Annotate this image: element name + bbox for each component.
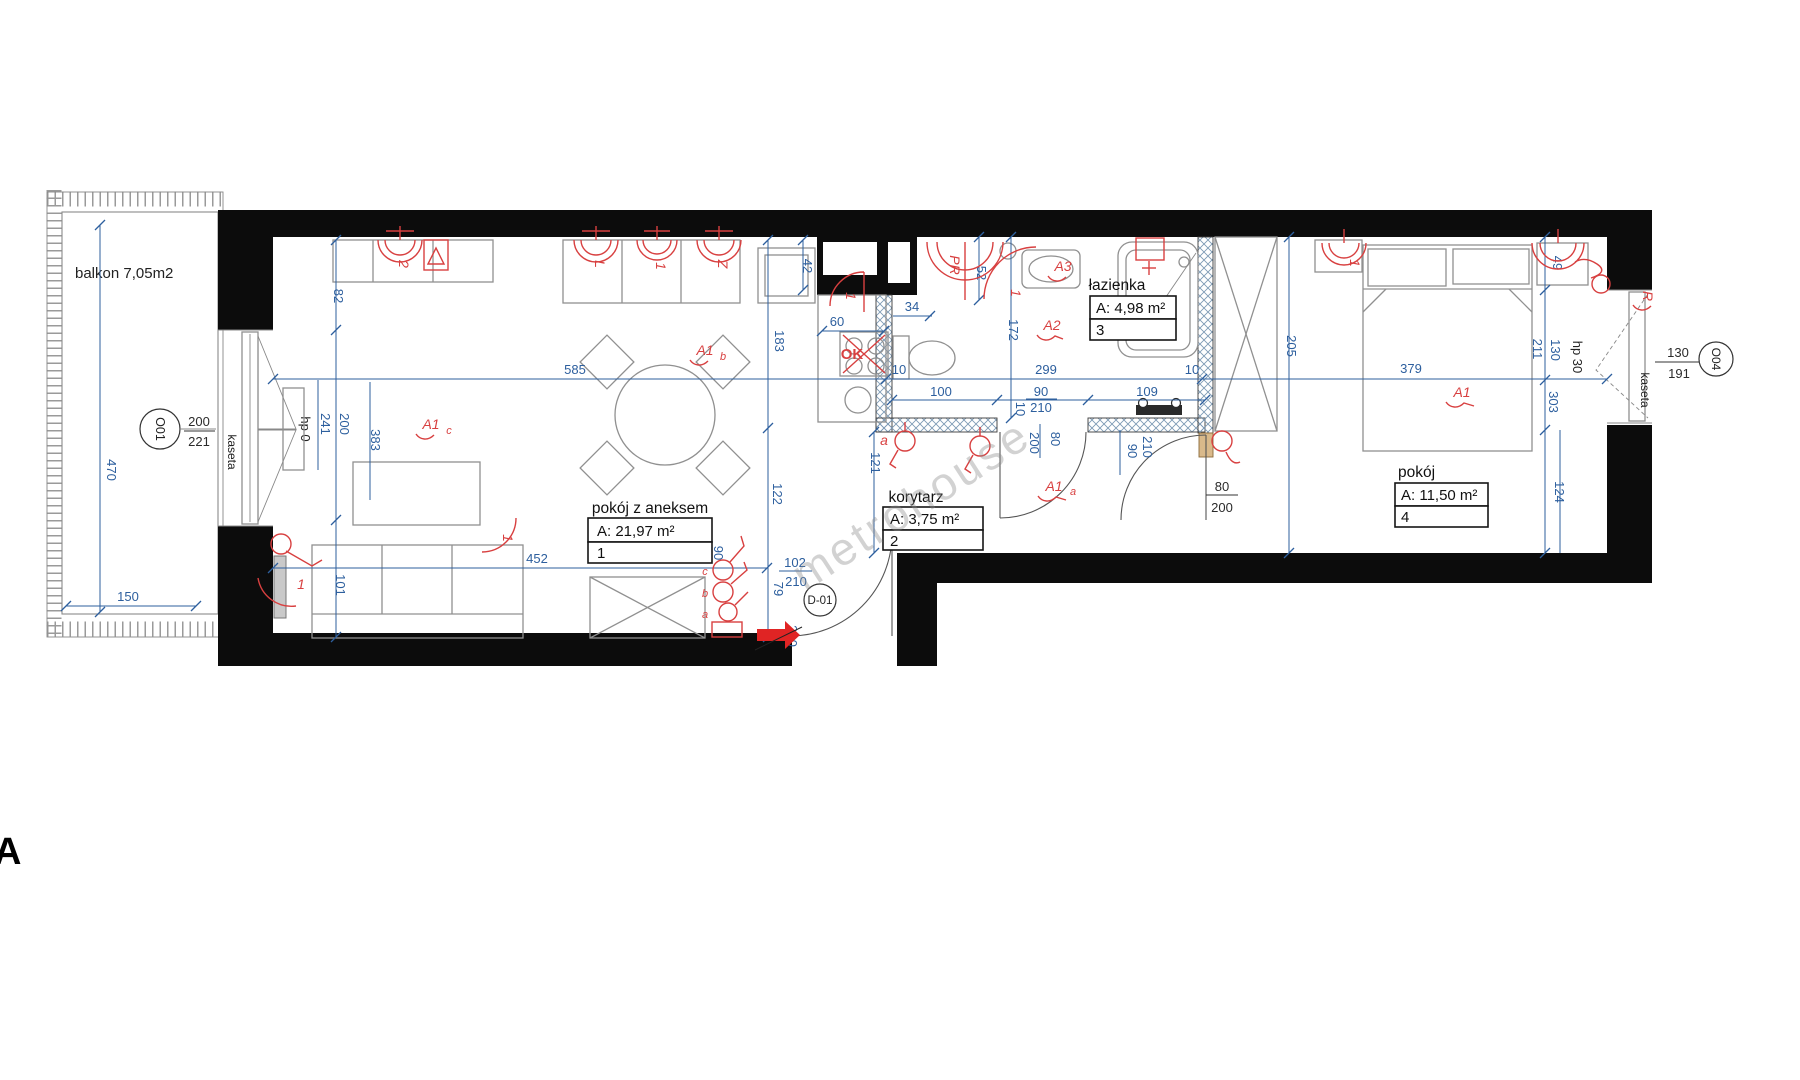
lamp-label: 1 (653, 262, 669, 270)
bathtub-faucet (1136, 238, 1164, 275)
room-area-bedroom: A: 11,50 m² (1401, 487, 1477, 504)
dim-80-bed: 80 (1215, 479, 1229, 494)
point-b: b (702, 588, 708, 600)
dim-150: 150 (117, 589, 139, 604)
dim-130-bed: 130 (1548, 339, 1563, 361)
radiator-label: 1 (297, 576, 305, 592)
a3-label: A3 (1053, 258, 1071, 274)
dim-79: 79 (771, 582, 786, 596)
dim-101: 101 (333, 574, 348, 596)
window-o04-bottom: 191 (1668, 366, 1690, 381)
window-o01-id: O01 (153, 417, 167, 441)
dim-121: 121 (868, 452, 883, 474)
floor-plan: balkon 7,05m2 O01 (0, 0, 1800, 1080)
dim-299: 299 (1035, 362, 1057, 377)
sheet-letter: A (0, 831, 21, 873)
room-number-bath: 3 (1096, 322, 1104, 339)
lamp-label: 2 (396, 259, 412, 268)
dim-80-hall: 80 (1048, 432, 1063, 446)
fridge (758, 248, 815, 303)
window-o01-param: hp 0 (298, 416, 313, 441)
chair (696, 441, 750, 495)
dim-183: 183 (772, 330, 787, 352)
dim-90-bath: 90 (1034, 384, 1048, 399)
bath-lamp-label: 1 (1008, 289, 1024, 297)
dim-124: 124 (1552, 481, 1567, 503)
a1a-sub: a (1070, 486, 1076, 498)
kitchen-lamp-label: 1 (843, 292, 859, 300)
a1-label: A1 (1452, 384, 1470, 400)
wall-a-label: a (880, 432, 888, 448)
pillow (1368, 249, 1446, 286)
point-a: a (702, 609, 708, 621)
dim-122: 122 (770, 483, 785, 505)
dim-100: 100 (930, 384, 952, 399)
dim-60: 60 (830, 314, 844, 329)
balcony-door-leaf (258, 336, 296, 429)
lamp-label: L (592, 260, 608, 268)
room-number-living: 1 (597, 545, 605, 562)
dim-210-bath: 210 (1030, 400, 1052, 415)
dim-383: 383 (368, 429, 383, 451)
dim-452: 452 (526, 551, 548, 566)
dining-table (615, 365, 715, 465)
a2-label: A2 (1042, 317, 1060, 333)
coffee-table (353, 462, 480, 525)
dim-34: 34 (905, 299, 919, 314)
dim-241: 241 (318, 413, 333, 435)
room-name-bath: łazienka (1089, 277, 1146, 294)
a1a-label: A1 (1044, 478, 1062, 494)
sofa-lamp-label: 1 (500, 534, 516, 542)
balcony-label: balkon 7,05m2 (75, 265, 173, 282)
dim-10-a: 10 (892, 362, 906, 377)
ok-label: OK (841, 346, 864, 363)
room-name-bedroom: pokój (1398, 464, 1435, 481)
dim-10-b: 10 (1185, 362, 1199, 377)
dim-109: 109 (1136, 384, 1158, 399)
window-o04-param: hp 30 (1570, 341, 1585, 374)
dim-379: 379 (1400, 361, 1422, 376)
dim-303: 303 (1546, 391, 1561, 413)
pillow (1453, 249, 1529, 284)
a1c-label: A1 (421, 416, 439, 432)
chair (580, 441, 634, 495)
dim-42: 42 (800, 259, 815, 273)
room-number-bedroom: 4 (1401, 509, 1409, 526)
bedroom-lamp-label: 1 (1347, 259, 1363, 267)
dim-585: 585 (564, 362, 586, 377)
floor-plan-sheet: balkon 7,05m2 O01 (0, 0, 1800, 1080)
a1b-label: A1 (695, 342, 713, 358)
room-area-living: A: 21,97 m² (597, 523, 675, 540)
dim-210-bed: 210 (1140, 436, 1155, 458)
hatched-walls (876, 237, 1213, 457)
lamp-label: Z (715, 259, 731, 269)
window-o04-top: 130 (1667, 345, 1689, 360)
window-o01-top: 200 (188, 414, 210, 429)
kitchen-cabinet (563, 240, 740, 303)
dim-82: 82 (331, 289, 346, 303)
bed (1363, 245, 1532, 451)
chair (580, 335, 634, 389)
dim-90-entry: 90 (711, 546, 726, 560)
window-o01-bottom: 221 (188, 434, 210, 449)
room-area-bath: A: 4,98 m² (1096, 300, 1165, 317)
window-o04-tag: kaseta (1638, 372, 1652, 408)
dim-90-bed: 90 (1125, 444, 1140, 458)
dim-172: 172 (1006, 319, 1021, 341)
dim-205: 205 (1284, 335, 1299, 357)
window-o04-id: O04 (1709, 348, 1723, 371)
room-name-living: pokój z aneksem (592, 500, 708, 517)
dim-200-bed: 200 (1211, 500, 1233, 515)
dim-10-c: 10 (1013, 402, 1028, 416)
r-mark: R (1640, 291, 1656, 301)
a1b-sub: b (720, 351, 726, 363)
toilet (909, 341, 955, 375)
kitchen-sink (845, 387, 871, 413)
a1c-sub: c (446, 425, 452, 437)
washer-label: PR (947, 255, 963, 274)
balcony-door-leaf (258, 430, 296, 522)
dim-211: 211 (1530, 339, 1545, 360)
point-c: c (702, 566, 708, 578)
window-o01-tag: kaseta (225, 434, 239, 470)
dim-470: 470 (104, 459, 119, 481)
dim-200-left: 200 (337, 413, 352, 435)
